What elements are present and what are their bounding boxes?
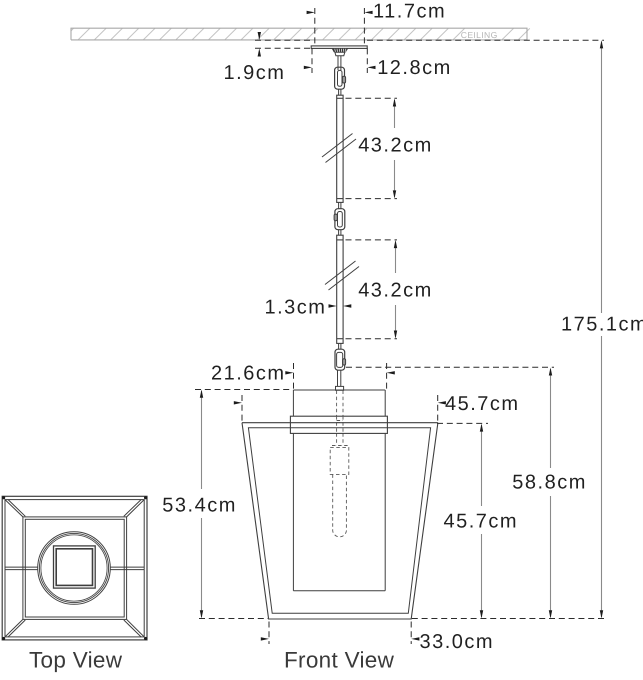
svg-text:1.9cm: 1.9cm (224, 62, 286, 84)
svg-text:21.6cm: 21.6cm (211, 363, 286, 385)
svg-text:58.8cm: 58.8cm (512, 472, 587, 494)
svg-text:12.8cm: 12.8cm (377, 57, 452, 79)
svg-text:45.7cm: 45.7cm (444, 511, 519, 533)
svg-text:1.3cm: 1.3cm (265, 297, 327, 319)
svg-text:CEILING: CEILING (461, 30, 498, 40)
svg-text:175.1cm: 175.1cm (561, 314, 643, 336)
svg-text:11.7cm: 11.7cm (373, 1, 446, 23)
svg-text:43.2cm: 43.2cm (358, 280, 433, 302)
svg-text:Top View: Top View (29, 648, 123, 673)
svg-text:33.0cm: 33.0cm (420, 631, 495, 653)
svg-text:53.4cm: 53.4cm (162, 495, 237, 517)
svg-text:Front View: Front View (284, 648, 395, 673)
svg-text:43.2cm: 43.2cm (358, 135, 433, 157)
svg-text:45.7cm: 45.7cm (445, 393, 520, 415)
